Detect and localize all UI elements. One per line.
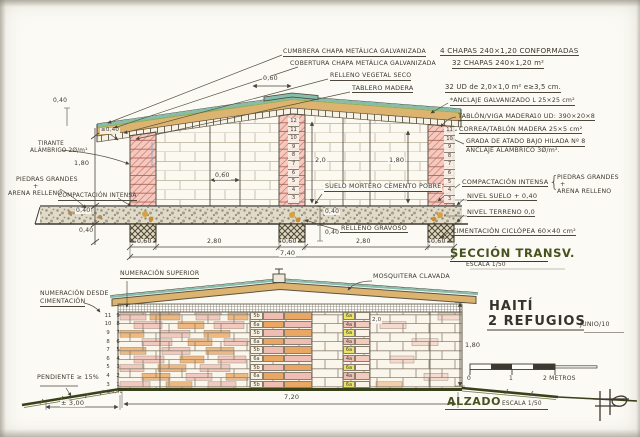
dim-chain-top: 0,40 — [52, 98, 68, 104]
stone-block — [284, 338, 312, 346]
course-number-row: 10 8 — [103, 320, 123, 329]
course-number-from-foundation: 8 — [103, 339, 113, 345]
project-date: JUNIO/10 — [580, 322, 610, 329]
course-number-from-foundation: 5 — [103, 364, 113, 370]
stone-block — [263, 381, 284, 389]
course-number-from-top: 8 — [113, 321, 123, 327]
course-number-from-top: 7 — [113, 330, 123, 336]
course-number: 11 — [288, 127, 299, 136]
course-number-from-top: 1 — [113, 382, 123, 388]
elevation-course-numbering: 11 9 10 8 9 7 8 6 7 5 6 4 5 3 4 2 3 1 — [103, 312, 123, 389]
stone-block — [263, 312, 284, 320]
course-number-row: 11 9 — [103, 312, 123, 321]
project-title-line1: HAITÍ — [489, 300, 533, 314]
note-compactacion-left: COMPACTACIÓN INTENSA — [58, 193, 137, 201]
block-code-label: 5b — [250, 329, 263, 337]
course-number-from-foundation: 11 — [103, 313, 113, 319]
block-code-label: 5b — [250, 364, 263, 372]
stone-block — [355, 372, 370, 380]
note-numeracion-desde-1: NUMERACIÓN DESDE — [40, 291, 109, 298]
dim-bay-5: 0,60 — [430, 239, 447, 246]
stone-block — [263, 346, 284, 354]
course-number-from-top: 9 — [113, 313, 123, 319]
sketch-paper: CUMBRERA CHAPA METÁLICA GALVANIZADA 4 CH… — [0, 0, 640, 437]
dim-room-height-left: 2,0 — [314, 157, 327, 164]
stone-block — [263, 321, 284, 329]
course-number: 5 — [288, 178, 299, 187]
elevation-right-block-strip: 6a 4a 6a 4a 6a 4a 6a 4a 6a — [343, 312, 370, 389]
note-cumbrera: CUMBRERA CHAPA METÁLICA GALVANIZADA — [283, 49, 426, 57]
block-code-label: 4a — [343, 338, 355, 346]
stone-block — [263, 338, 284, 346]
note-pendiente: PENDIENTE ≥ 15% — [37, 375, 99, 382]
note-nivel-suelo: NIVEL SUELO + 0,40 — [467, 193, 537, 201]
dim-footing-right: 0,40 — [324, 230, 340, 236]
note-anclaje-galvanizado: *ANCLAJE GALVANIZADO L 25×25 cm² — [450, 98, 575, 106]
course-number-from-top: 3 — [113, 364, 123, 370]
labeled-block-row: 4a — [343, 338, 370, 347]
elevation-scale: ESCALA 1/50 — [502, 401, 542, 407]
dim-eave-left: ≥0,40 — [100, 128, 120, 134]
course-number-row: 5 3 — [103, 363, 123, 372]
course-number: 8 — [288, 152, 299, 161]
stone-block — [355, 329, 370, 337]
course-number-from-top: 4 — [113, 356, 123, 362]
labeled-block-row: 5b — [250, 329, 312, 338]
labeled-block-row: 4a — [343, 321, 370, 330]
stone-block — [263, 355, 284, 363]
note-tablon-viga-value: 10 UD: 390×20×8 — [533, 113, 595, 121]
course-number: 4 — [444, 187, 455, 196]
stone-block — [284, 364, 312, 372]
course-number: 3 — [288, 195, 299, 204]
project-title-line2: 2 REFUGIOS — [488, 315, 586, 329]
dim-bay-3: 0,60 — [281, 239, 298, 246]
block-code-label: 5b — [250, 312, 263, 320]
note-nivel-terreno: NIVEL TERRENO 0,0 — [467, 209, 535, 217]
labeled-block-row: 6a — [250, 321, 312, 330]
dim-wall-height: 1,80 — [73, 160, 90, 167]
labeled-block-row: 6a — [343, 312, 370, 321]
stone-block — [284, 312, 312, 320]
course-number-from-foundation: 4 — [103, 373, 113, 379]
note-numeracion-superior: NUMERACIÓN SUPERIOR — [120, 271, 199, 279]
dim-slope-length: ± 3,00 — [60, 400, 85, 407]
note-relleno-vegetal: RELLENO VEGETAL SECO — [330, 73, 411, 81]
course-number: 6 — [444, 170, 455, 179]
section-drawing — [35, 93, 468, 242]
note-correa: CORREA/TABLÓN MADERA 25×5 cm² — [459, 126, 582, 134]
block-code-label: 6a — [250, 321, 263, 329]
stone-block — [284, 381, 312, 389]
stone-block — [263, 329, 284, 337]
course-number: 12 — [288, 118, 299, 127]
block-code-label: 6a — [343, 381, 355, 389]
signature — [593, 389, 629, 421]
course-number-from-foundation: 9 — [103, 330, 113, 336]
dim-footing-height: 0,40 — [78, 228, 94, 234]
block-code-label: 5b — [250, 346, 263, 354]
section-course-numbers-mid: 1211109876543 — [288, 118, 299, 204]
course-number-from-top: 5 — [113, 347, 123, 353]
dim-bay-2: 2,80 — [206, 239, 223, 246]
labeled-block-row: 6a — [250, 355, 312, 364]
note-compactacion: COMPACTACIÓN INTENSA — [462, 179, 548, 187]
section-scale: ESCALA 1/50 — [466, 262, 506, 268]
dim-total-width: 7,40 — [279, 250, 296, 257]
note-grada-anclaje: ANCLAJE ALÁMBRICO 3Ø/m². — [466, 148, 560, 155]
stone-block — [284, 355, 312, 363]
elevation-center-block-strip: 5b 6a 5b 6a 5b 6a 5b 6a 5b — [250, 312, 312, 389]
stone-block — [263, 364, 284, 372]
course-number-from-foundation: 3 — [103, 382, 113, 388]
note-tirante-2: ALÁMBRICO 2Ø/m¹ — [30, 148, 88, 154]
note-tirante-1: TIRANTE — [38, 141, 64, 147]
block-code-label: 6a — [250, 338, 263, 346]
labeled-block-row: 6a — [343, 381, 370, 390]
course-number-row: 8 6 — [103, 337, 123, 346]
dim-band-height: 0,40 — [75, 208, 91, 214]
block-code-label: 6a — [343, 329, 355, 337]
dim-bay-4: 2,80 — [355, 239, 372, 246]
labeled-block-row: 6a — [343, 364, 370, 373]
dim-floor-band: 0,40 — [324, 209, 340, 215]
stone-block — [355, 364, 370, 372]
block-code-label: 4a — [343, 321, 355, 329]
stone-block — [355, 338, 370, 346]
dim-room-height-right: 1,80 — [388, 157, 405, 164]
dim-elevation-width: 7,20 — [283, 394, 300, 401]
stone-block — [355, 381, 370, 389]
stone-block — [355, 355, 370, 363]
course-number: 11 — [444, 127, 455, 136]
note-relleno-gravoso: RELLENO GRAVOSO — [340, 225, 408, 233]
scale-bar — [470, 364, 597, 375]
course-number: 5 — [444, 179, 455, 188]
stone-block — [355, 346, 370, 354]
note-cobertura-value: 32 CHAPAS 240×1,20 m² — [452, 60, 544, 69]
note-arena-relleno-left: ARENA RELLENO — [8, 191, 62, 198]
course-number-row: 3 1 — [103, 380, 123, 389]
course-number-row: 9 7 — [103, 329, 123, 338]
labeled-block-row: 6a — [343, 329, 370, 338]
elevation-title: ALZADO — [447, 396, 501, 408]
course-number: 7 — [288, 161, 299, 170]
block-code-label: 5b — [250, 381, 263, 389]
dim-door-width: 0,60 — [214, 173, 231, 180]
note-cumbrera-value: 4 CHAPAS 240×1,20 CONFORMADAS — [440, 47, 579, 56]
course-number-from-foundation: 6 — [103, 356, 113, 362]
stone-block — [284, 346, 312, 354]
note-arena-relleno-right: ARENA RELLENO — [557, 189, 611, 196]
note-grada-atado: GRADA DE ATADO BAJO HILADA Nº 8 — [466, 139, 585, 147]
course-number-row: 7 5 — [103, 346, 123, 355]
dim-ridge-overlap: 0,60 — [262, 76, 279, 83]
stone-block — [263, 372, 284, 380]
course-number: 9 — [288, 144, 299, 153]
scalebar-zero: 0 — [467, 376, 471, 382]
stone-block — [284, 372, 312, 380]
section-course-numbers-right: 11109876543 — [444, 127, 455, 204]
labeled-block-row: 6a — [250, 338, 312, 347]
note-tablon-viga: TABLÓN/VIGA MADERA — [458, 113, 534, 121]
course-number-from-foundation: 10 — [103, 321, 113, 327]
labeled-block-row: 4a — [343, 372, 370, 381]
labeled-block-row: 5b — [250, 381, 312, 390]
course-number: 8 — [444, 153, 455, 162]
stone-block — [284, 321, 312, 329]
note-piedras-grandes-right: PIEDRAS GRANDES — [557, 175, 619, 182]
labeled-block-row: 6a — [343, 346, 370, 355]
course-number: 7 — [444, 161, 455, 170]
dim-base-offset: ±0,40 — [107, 390, 123, 395]
course-number-from-top: 2 — [113, 373, 123, 379]
note-suelo-mortero: SUELO MORTERO CEMENTO POBRE — [324, 184, 442, 192]
block-code-label: 6a — [343, 346, 355, 354]
block-code-label: 4a — [343, 372, 355, 380]
dim-block: 2,0 — [371, 318, 382, 324]
labeled-block-row: 5b — [250, 346, 312, 355]
stone-block — [284, 329, 312, 337]
labeled-block-row: 6a — [250, 372, 312, 381]
block-code-label: 6a — [343, 312, 355, 320]
labeled-block-row: 5b — [250, 364, 312, 373]
course-number: 3 — [444, 196, 455, 205]
note-tablero-value: 32 UD de 2,0×1,0 m² e≥3,5 cm. — [445, 84, 561, 93]
course-number: 9 — [444, 144, 455, 153]
course-number: 6 — [288, 170, 299, 179]
course-number-from-top: 6 — [113, 339, 123, 345]
section-title: SECCIÓN TRANSV. — [450, 247, 575, 259]
note-numeracion-desde-2: CIMENTACIÓN — [40, 299, 85, 307]
labeled-block-row: 4a — [343, 355, 370, 364]
labeled-block-row: 5b — [250, 312, 312, 321]
note-cimentacion: CIMENTACIÓN CICLÓPEA 60×40 cm² — [452, 228, 576, 236]
course-number: 4 — [288, 187, 299, 196]
note-tablero: TABLERO MADERA — [352, 85, 413, 93]
course-number: 10 — [444, 136, 455, 145]
dim-elevation-height: 1,80 — [464, 342, 481, 349]
scalebar-one: 1 — [509, 376, 513, 382]
course-number-row: 4 2 — [103, 372, 123, 381]
course-number-from-foundation: 7 — [103, 347, 113, 353]
course-number-row: 6 4 — [103, 354, 123, 363]
block-code-label: 4a — [343, 355, 355, 363]
note-piedras-grandes-left: PIEDRAS GRANDES — [16, 177, 78, 184]
note-cobertura: COBERTURA CHAPA METÁLICA GALVANIZADA — [290, 61, 436, 68]
stone-block — [355, 321, 370, 329]
course-number: 10 — [288, 135, 299, 144]
block-code-label: 6a — [250, 372, 263, 380]
scalebar-two-metros: 2 METROS — [543, 376, 576, 382]
block-code-label: 6a — [250, 355, 263, 363]
stone-block — [355, 312, 370, 320]
dim-bay-1: 0,60 — [136, 239, 153, 246]
note-mosquitera: MOSQUITERA CLAVADA — [373, 274, 450, 281]
block-code-label: 6a — [343, 364, 355, 372]
